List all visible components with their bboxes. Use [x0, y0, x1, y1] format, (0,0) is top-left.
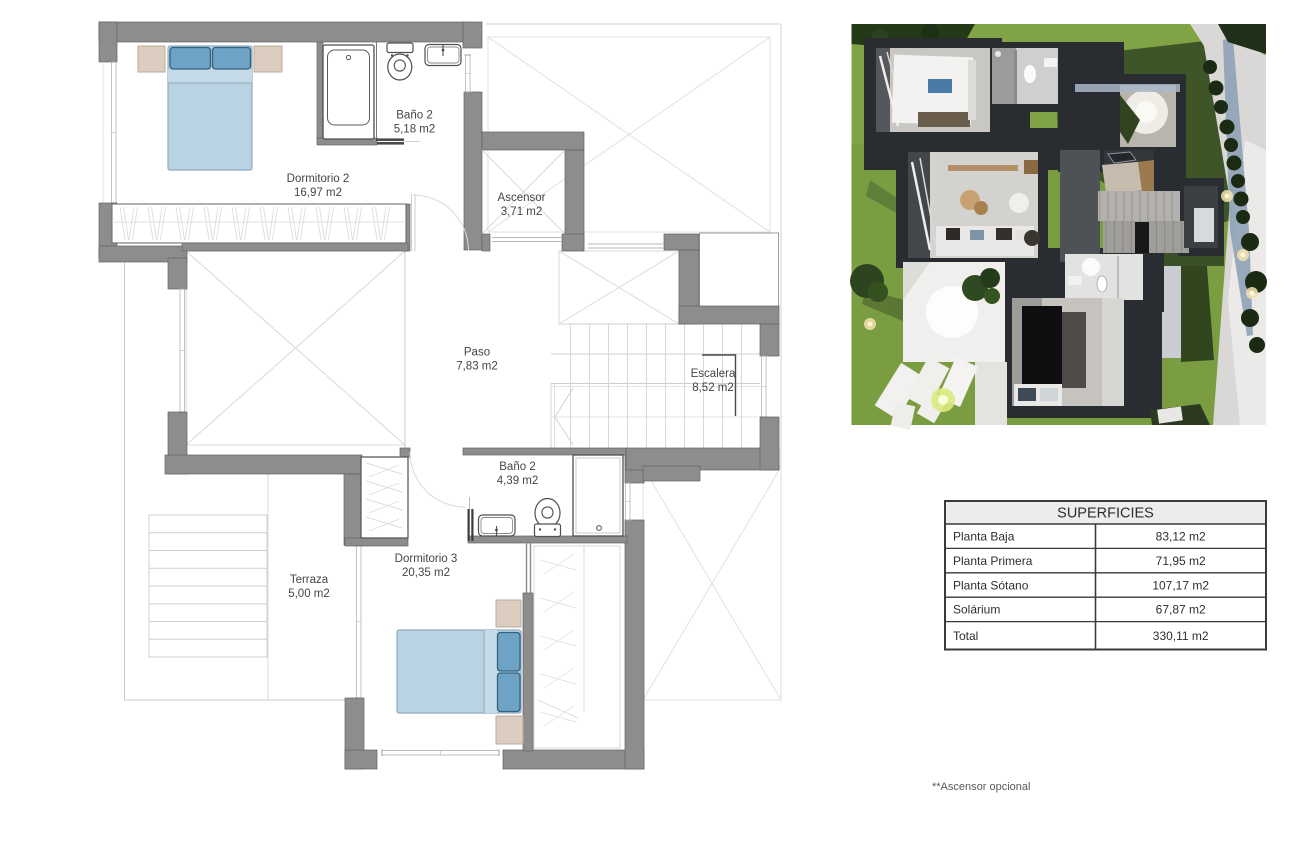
- svg-text:Planta Primera: Planta Primera: [953, 554, 1033, 568]
- svg-text:4,39 m2: 4,39 m2: [497, 475, 539, 487]
- svg-text:71,95 m2: 71,95 m2: [1156, 554, 1206, 568]
- svg-text:**Ascensor opcional: **Ascensor opcional: [932, 781, 1030, 793]
- svg-text:Solárium: Solárium: [953, 603, 1000, 617]
- svg-text:7,83 m2: 7,83 m2: [456, 361, 498, 373]
- svg-text:330,11 m2: 330,11 m2: [1153, 629, 1209, 643]
- svg-text:Paso: Paso: [464, 347, 490, 359]
- svg-text:SUPERFICIES: SUPERFICIES: [1057, 506, 1154, 522]
- svg-text:Baño 2: Baño 2: [396, 110, 432, 122]
- svg-text:Planta Baja: Planta Baja: [953, 530, 1015, 544]
- svg-text:Ascensor: Ascensor: [498, 192, 546, 204]
- svg-text:Planta Sótano: Planta Sótano: [953, 578, 1029, 592]
- svg-text:20,35 m2: 20,35 m2: [402, 567, 450, 579]
- svg-text:Dormitorio 2: Dormitorio 2: [287, 173, 350, 185]
- svg-text:Total: Total: [953, 629, 978, 643]
- svg-text:16,97 m2: 16,97 m2: [294, 187, 342, 199]
- svg-text:Terraza: Terraza: [290, 574, 329, 586]
- svg-text:67,87 m2: 67,87 m2: [1156, 603, 1206, 617]
- svg-text:5,18 m2: 5,18 m2: [394, 124, 436, 136]
- svg-text:107,17 m2: 107,17 m2: [1152, 578, 1209, 592]
- svg-text:83,12 m2: 83,12 m2: [1156, 530, 1206, 544]
- svg-text:8,52 m2: 8,52 m2: [692, 382, 734, 394]
- svg-text:3,71 m2: 3,71 m2: [501, 206, 543, 218]
- svg-text:Dormitorio 3: Dormitorio 3: [395, 553, 458, 565]
- svg-text:5,00 m2: 5,00 m2: [288, 588, 330, 600]
- svg-text:Escalera: Escalera: [691, 368, 736, 380]
- svg-text:Baño 2: Baño 2: [499, 461, 535, 473]
